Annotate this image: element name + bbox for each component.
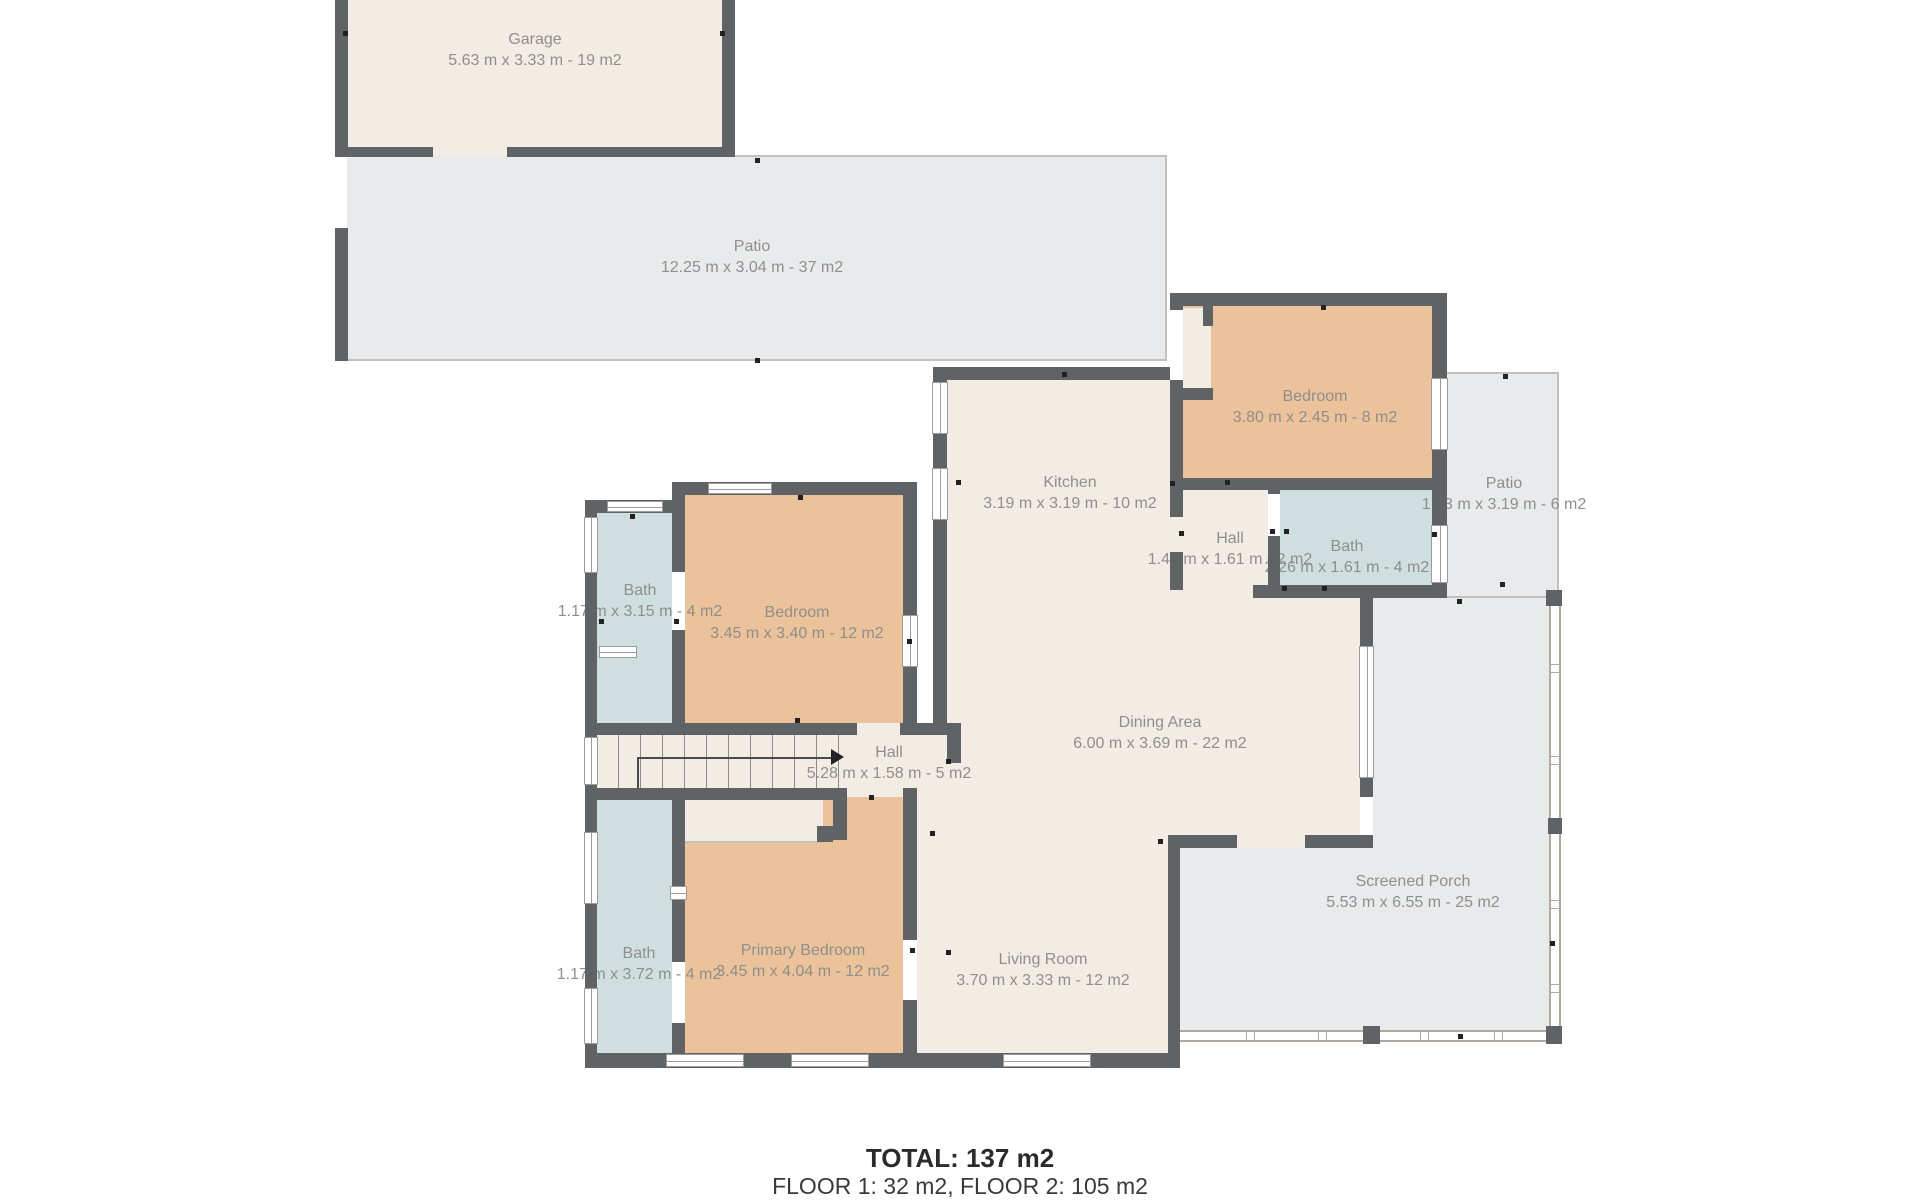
porch-right-screen-tick-2 (1549, 756, 1561, 757)
bath-upper-middle-dims: 2.26 m x 1.61 m - 4 m2 (1265, 557, 1430, 578)
marker-dot-28 (1158, 839, 1163, 844)
house-left-window-2 (584, 737, 598, 785)
marker-dot-29 (1457, 599, 1462, 604)
bath-upper-middle-left-wall-lower (1268, 536, 1280, 585)
porch-right-screen-tick-1 (1549, 672, 1561, 673)
primary-bedroom-label: Primary Bedroom3.45 m x 4.04 m - 12 m2 (716, 940, 889, 982)
house-bottom-window-3 (1003, 1054, 1091, 1067)
patio-top-edge (735, 155, 1167, 157)
porch-post-mid-right (1548, 818, 1562, 834)
bath-bedroom-divider-upper (672, 495, 685, 572)
closet-floor (685, 797, 823, 842)
stairs-direction-arrow-shaft (637, 757, 833, 759)
kitchen-left-window-2 (932, 468, 948, 520)
marker-dot-14 (1282, 586, 1287, 591)
stairs-bottom-wall (585, 788, 833, 800)
bath-upper-middle-label: Bath2.26 m x 1.61 m - 4 m2 (1265, 536, 1430, 578)
porch-bottom-screen-tick-1 (1254, 1030, 1255, 1042)
patio-top-dims: 12.25 m x 3.04 m - 37 m2 (661, 257, 843, 278)
screened-porch-label: Screened Porch5.53 m x 6.55 m - 25 m2 (1326, 871, 1499, 913)
bedroom-top-right-left-wall-upper (1170, 293, 1183, 310)
entry-recess-corner-stub (1203, 306, 1213, 326)
porch-post-bottom-right (1546, 1026, 1562, 1044)
bedroom-middle-left-label: Bedroom3.45 m x 3.40 m - 12 m2 (710, 602, 883, 644)
bath-upper-middle-left-wall-upper (1268, 478, 1280, 494)
patio-top-label: Patio12.25 m x 3.04 m - 37 m2 (661, 236, 843, 278)
kitchen-name: Kitchen (983, 472, 1156, 493)
bath-upper-middle-name: Bath (1265, 536, 1430, 557)
marker-dot-30 (1550, 941, 1555, 946)
primary-bedroom-name: Primary Bedroom (716, 940, 889, 961)
marker-dot-25 (930, 831, 935, 836)
marker-dot-11 (1270, 529, 1275, 534)
marker-dot-22 (795, 718, 800, 723)
floor-areas-label: FLOOR 1: 32 m2, FLOOR 2: 105 m2 (772, 1173, 1148, 1200)
marker-dot-26 (910, 948, 915, 953)
bedroom-top-right-label: Bedroom3.80 m x 2.45 m - 8 m2 (1233, 386, 1398, 428)
bath-lower-left-name: Bath (557, 943, 722, 964)
marker-dot-20 (798, 495, 803, 500)
garage-dims: 5.63 m x 3.33 m - 19 m2 (448, 50, 621, 71)
kitchen-right-wall-lower (1170, 552, 1183, 590)
marker-dot-27 (946, 950, 951, 955)
bath-lower-left-dims: 1.17 m x 3.72 m - 4 m2 (557, 964, 722, 985)
marker-dot-9 (1225, 480, 1230, 485)
garage-left-wall (335, 0, 348, 157)
porch-bottom-screen-tick-0 (1246, 1030, 1247, 1042)
bath-upper-left-name: Bath (558, 580, 723, 601)
porch-right-screen-tick-6 (1549, 984, 1561, 985)
screened-porch-dims: 5.53 m x 6.55 m - 25 m2 (1326, 892, 1499, 913)
garage-bottom-wall-left (335, 147, 433, 157)
marker-dot-18 (599, 619, 604, 624)
marker-dot-8 (1170, 481, 1175, 486)
bedroom-top-right-window-1 (1431, 378, 1448, 450)
hall-stub-wall (833, 788, 847, 840)
garage-right-wall (722, 0, 735, 157)
bath-vanity (599, 646, 637, 658)
dining-bottom-wall-left (1168, 835, 1237, 848)
bedroom-top-right-name: Bedroom (1233, 386, 1398, 407)
bedroom-middle-left-dims: 3.45 m x 3.40 m - 12 m2 (710, 623, 883, 644)
porch-right-screen-tick-0 (1549, 664, 1561, 665)
marker-dot-31 (1458, 1034, 1463, 1039)
bath-upper-left-top-window (607, 501, 663, 512)
porch-bottom-screen-tick-6 (1494, 1030, 1495, 1042)
garage-name: Garage (448, 29, 621, 50)
marker-dot-23 (869, 795, 874, 800)
dining-right-wall-lower (1360, 778, 1373, 797)
hall-connector-floor (917, 788, 947, 848)
entry-recess-stub-wall (1183, 388, 1213, 400)
kitchen-left-window-1 (932, 382, 948, 434)
porch-bottom-screen-tick-7 (1502, 1030, 1503, 1042)
kitchen-top-wall (933, 367, 1170, 380)
living-room-name: Living Room (956, 949, 1129, 970)
bedroom-middle-left-right-wall-upper (903, 482, 917, 615)
marker-dot-3 (755, 358, 760, 363)
bedroom-middle-left-top-window (708, 483, 772, 494)
bedroom-top-right-top-wall (1170, 293, 1447, 306)
marker-dot-21 (907, 639, 912, 644)
living-porch-wall (1168, 848, 1180, 1053)
living-room-dims: 3.70 m x 3.33 m - 12 m2 (956, 970, 1129, 991)
porch-bottom-screen-tick-4 (1420, 1030, 1421, 1042)
garage-label: Garage5.63 m x 3.33 m - 19 m2 (448, 29, 621, 71)
floor-plan-canvas: Garage5.63 m x 3.33 m - 19 m2 Patio12.25… (0, 0, 1920, 1200)
porch-right-screen-tick-4 (1549, 900, 1561, 901)
dining-stub-wall (947, 723, 961, 763)
bedroom-middle-left-right-wall-lower (903, 667, 917, 723)
bedroom-middle-left-name: Bedroom (710, 602, 883, 623)
garage-floor (335, 0, 735, 157)
bedroom-top-right-dims: 3.80 m x 2.45 m - 8 m2 (1233, 407, 1398, 428)
bath-lower-left-floor (597, 800, 672, 1055)
total-area-label: TOTAL: 137 m2 (866, 1143, 1054, 1174)
bath-lower-left-label: Bath1.17 m x 3.72 m - 4 m2 (557, 943, 722, 985)
dining-right-window (1359, 646, 1374, 778)
garage-bottom-wall-right (507, 147, 735, 157)
stairs-direction-arrow-start (637, 757, 639, 788)
marker-dot-6 (1503, 374, 1508, 379)
kitchen-dims: 3.19 m x 3.19 m - 10 m2 (983, 493, 1156, 514)
marker-dot-7 (956, 480, 961, 485)
porch-right-screen-tick-3 (1549, 764, 1561, 765)
marker-dot-17 (630, 514, 635, 519)
dining-bottom-wall-right (1305, 835, 1373, 848)
bedroom-top-right-left-wall-lower (1170, 380, 1183, 480)
patio-top-name: Patio (661, 236, 843, 257)
house-left-window-3 (584, 832, 598, 904)
marker-dot-4 (1062, 372, 1067, 377)
dining-area-label: Dining Area6.00 m x 3.69 m - 22 m2 (1073, 712, 1246, 754)
dining-right-wall-upper (1360, 588, 1373, 648)
marker-dot-24 (946, 759, 951, 764)
bath-primary-divider-upper (672, 788, 685, 962)
marker-dot-2 (755, 158, 760, 163)
screened-porch-name: Screened Porch (1326, 871, 1499, 892)
patio-left-wall (335, 228, 348, 361)
bath-pocket-door (670, 886, 687, 900)
porch-bottom-screen-tick-3 (1326, 1030, 1327, 1042)
dining-area-name: Dining Area (1073, 712, 1246, 733)
screened-porch-right-floor (1373, 598, 1550, 1032)
stairs-top-wall (585, 723, 857, 735)
kitchen-label: Kitchen3.19 m x 3.19 m - 10 m2 (983, 472, 1156, 514)
porch-bottom-screen-tick-5 (1428, 1030, 1429, 1042)
porch-right-screen-tick-7 (1549, 992, 1561, 993)
house-bottom-window-1 (666, 1054, 744, 1067)
bath-bedroom-divider-lower (672, 630, 685, 723)
porch-bottom-screen-tick-2 (1318, 1030, 1319, 1042)
porch-post-bottom-center (1363, 1026, 1380, 1044)
marker-dot-5 (1321, 305, 1326, 310)
marker-dot-1 (720, 31, 725, 36)
primary-right-wall-lower (903, 1000, 917, 1055)
living-room-label: Living Room3.70 m x 3.33 m - 12 m2 (956, 949, 1129, 991)
marker-dot-13 (1432, 532, 1437, 537)
bedroom-top-right-bottom-wall (1183, 478, 1433, 490)
house-left-window-1 (584, 517, 598, 573)
hall-stairs-dims: 5.28 m x 1.58 m - 5 m2 (807, 763, 972, 784)
marker-dot-16 (1500, 582, 1505, 587)
marker-dot-12 (1284, 529, 1289, 534)
porch-post-top-right (1546, 590, 1562, 606)
stair-tread (618, 727, 619, 788)
porch-right-screen (1549, 604, 1561, 1028)
marker-dot-0 (343, 31, 348, 36)
house-left-window-4 (584, 988, 598, 1044)
closet-stub-wall (817, 826, 833, 842)
bath-upper-left-dims: 1.17 m x 3.15 m - 4 m2 (558, 601, 723, 622)
marker-dot-15 (1322, 586, 1327, 591)
patio2-porch-divider (1447, 596, 1550, 598)
closet-edge (685, 841, 823, 843)
marker-dot-19 (674, 619, 679, 624)
primary-right-wall-upper (903, 788, 917, 940)
primary-bedroom-dims: 3.45 m x 4.04 m - 12 m2 (716, 961, 889, 982)
porch-right-screen-tick-5 (1549, 908, 1561, 909)
patio-right-edge (1165, 155, 1167, 361)
bath-upper-left-label: Bath1.17 m x 3.15 m - 4 m2 (558, 580, 723, 622)
dining-area-dims: 6.00 m x 3.69 m - 22 m2 (1073, 733, 1246, 754)
house-bottom-window-2 (791, 1054, 869, 1067)
marker-dot-10 (1179, 531, 1184, 536)
